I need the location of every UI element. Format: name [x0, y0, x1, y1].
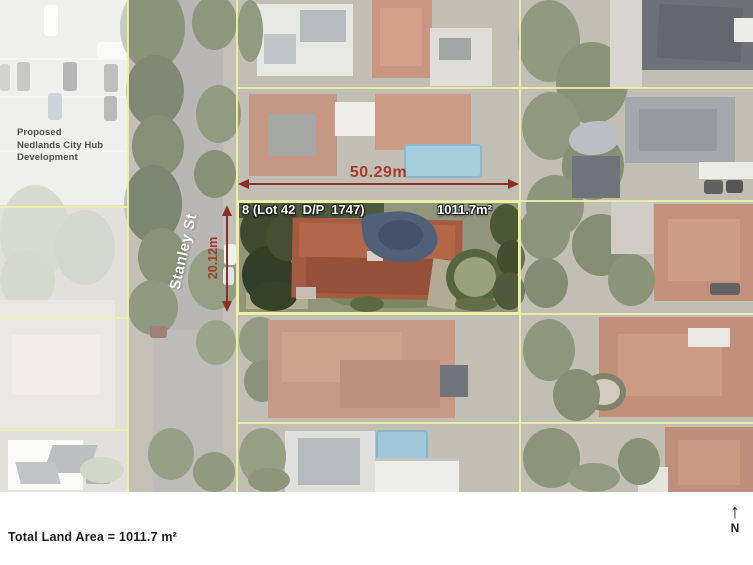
tree [196, 85, 241, 143]
roof-panel [268, 114, 316, 156]
building-roof [375, 461, 459, 492]
footer-bar: Total Land Area = 1011.7 m² ↑ N [0, 492, 753, 565]
north-label: N [722, 522, 748, 535]
shade-sail [335, 102, 377, 136]
roof-panel [439, 38, 471, 60]
width-dimension-label: 50.29m [237, 164, 520, 182]
car [726, 180, 743, 193]
tree [524, 258, 568, 308]
boundary-line [0, 429, 128, 431]
car [223, 267, 234, 285]
north-indicator: ↑ N [722, 502, 748, 535]
boundary-line [0, 206, 128, 208]
roof-panel [340, 360, 440, 408]
car [710, 283, 740, 295]
property-map-image: 50.29m 20.12m 8 (Lot 42 D/P 1747) 1011.7… [0, 0, 753, 565]
boundary-line [127, 0, 129, 492]
arrowhead-down [222, 301, 232, 312]
tree [568, 463, 620, 492]
roof-panel [657, 4, 744, 62]
boundary-line [0, 317, 128, 319]
car [704, 180, 723, 194]
width-dimension-line [246, 183, 512, 185]
driveway [611, 202, 653, 254]
house-roof [375, 94, 471, 150]
roof-panel [300, 10, 346, 42]
building-roof [688, 328, 730, 347]
development-area-fade [0, 0, 128, 492]
tree [237, 0, 263, 62]
development-note: Proposed Nedlands City Hub Development [17, 127, 137, 165]
building-roof [734, 18, 753, 42]
boundary-line [237, 87, 753, 89]
house-roof [380, 8, 422, 66]
subject-lot-boundary [237, 201, 520, 314]
lot-area-label: 1011.7m² [437, 202, 492, 217]
arrowhead-left [238, 179, 249, 189]
arrowhead-right [508, 179, 519, 189]
tree [618, 438, 660, 485]
roof-panel [639, 109, 717, 151]
tree [248, 468, 290, 492]
boundary-line [237, 422, 753, 424]
aerial-photo: 50.29m 20.12m 8 (Lot 42 D/P 1747) 1011.7… [0, 0, 753, 492]
driveway [699, 162, 753, 179]
driveway [610, 0, 642, 88]
tree [194, 150, 236, 198]
lot-label: 8 (Lot 42 D/P 1747) [242, 202, 365, 217]
tree [608, 254, 655, 306]
tree [520, 204, 570, 260]
arrowhead-up [222, 205, 232, 216]
roof-panel [298, 438, 360, 485]
roof-panel [668, 219, 740, 281]
total-land-area-text: Total Land Area = 1011.7 m² [8, 530, 177, 544]
north-arrow-icon: ↑ [722, 502, 748, 522]
tree [553, 369, 600, 421]
roof-panel [678, 440, 740, 485]
car [150, 326, 167, 338]
solar-panel [440, 365, 468, 397]
tree [196, 320, 236, 365]
depth-dimension-line [226, 214, 228, 303]
tree [193, 452, 235, 492]
roof-panel [264, 34, 296, 64]
depth-dimension-label: 20.12m [206, 230, 222, 286]
tree [148, 428, 194, 480]
shed-roof [572, 156, 620, 198]
